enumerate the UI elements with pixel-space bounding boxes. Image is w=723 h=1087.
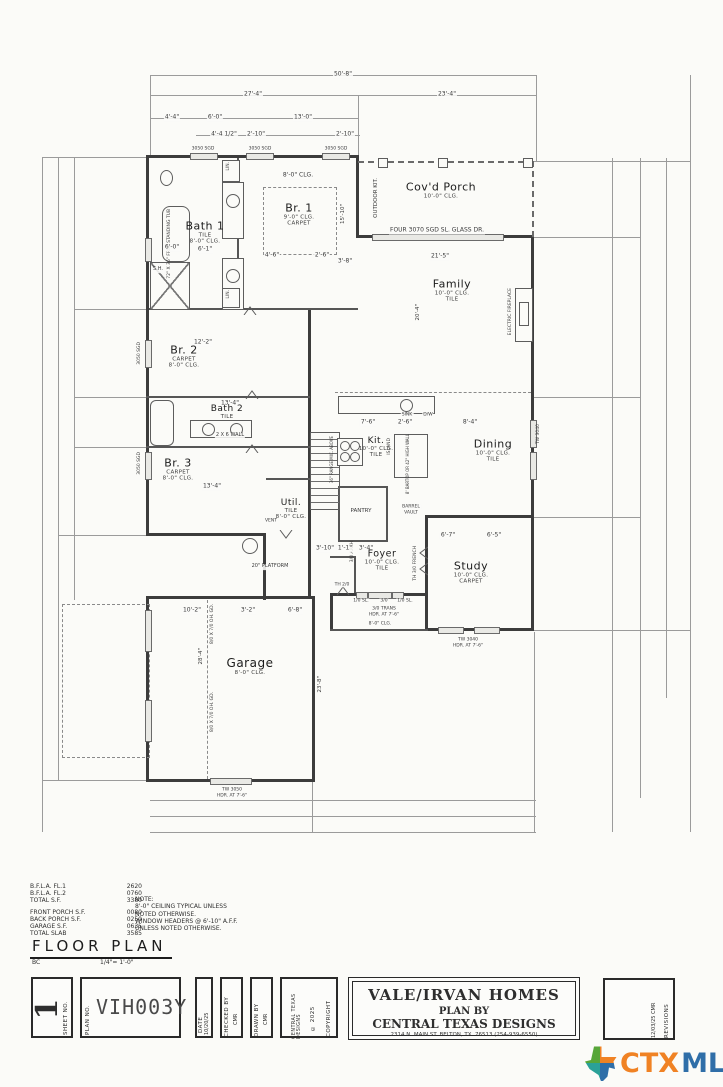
area-row: FRONT PORCH S.F.0080 xyxy=(30,909,142,916)
french-door-swing xyxy=(419,546,428,560)
extension-line xyxy=(74,447,146,448)
dim-label: 1'-1" xyxy=(337,546,353,553)
room-name: Garage xyxy=(227,656,274,670)
wall xyxy=(266,478,310,480)
dimension-line xyxy=(150,816,536,817)
extension-line xyxy=(534,630,690,631)
extension-line xyxy=(534,517,640,518)
note-line: 8'-0" CEILING TYPICAL UNLESS xyxy=(135,903,238,910)
dimension-line xyxy=(42,158,43,832)
drawing-title: FLOOR PLAN xyxy=(30,937,172,959)
checked-by-box: CHECKED BY CMR xyxy=(220,977,243,1038)
room-finish: TILE xyxy=(365,566,400,572)
designer-address: 2314 N. MAIN ST. BELTON, TX. 76513 (254-… xyxy=(353,1032,575,1038)
extension-line xyxy=(534,237,640,238)
checked-by-value: CMR xyxy=(233,997,239,1025)
dim-label: 2'-10" xyxy=(246,132,266,139)
dimension-line xyxy=(58,158,59,780)
logo-mls-text: MLS xyxy=(681,1048,723,1079)
floor-plan-sheet: { "plan": { "rooms": [ {"name": "Bath 1"… xyxy=(0,0,723,1087)
sheet-number-label: SHEET NO. xyxy=(63,985,69,1035)
plan-number-label: PLAN NO. xyxy=(85,985,91,1035)
wall xyxy=(425,515,534,518)
dim-label: 3'-8" xyxy=(337,259,353,266)
dimension-line xyxy=(150,95,536,96)
note-line: WINDOW HEADERS @ 6'-10" A.F.F. xyxy=(135,918,238,925)
shower-label: S.H. xyxy=(152,267,164,273)
room-br3: Br. 3 CARPET 8'-0" CLG. xyxy=(163,457,194,482)
room-name: Br. 2 xyxy=(169,344,200,357)
revisions-label: REVISIONS xyxy=(664,984,670,1038)
room-name: Foyer xyxy=(365,549,400,560)
extension-line xyxy=(536,75,537,161)
wall xyxy=(146,446,310,448)
wall xyxy=(312,596,315,782)
sink-label: SINK xyxy=(401,412,414,417)
extension-line xyxy=(150,75,151,157)
linen-label: LIN. xyxy=(227,290,232,299)
dim-label: 8'-4" xyxy=(462,420,478,427)
room-finish: CARPET xyxy=(454,579,489,585)
dimension-line xyxy=(690,75,691,832)
driveway-dashed xyxy=(62,604,150,758)
room-name: Bath 2 xyxy=(211,404,244,414)
stairs xyxy=(310,432,340,510)
overhead-door-label: 8/0 X 7/0 OH. GD. xyxy=(211,692,216,732)
area-row: B.F.L.A. FL.20760 xyxy=(30,890,142,897)
bartop-label: 8' BARTOP OR 42" HIGH WALL xyxy=(406,434,410,494)
copyright-company: CENTRAL TEXAS DESIGNS xyxy=(292,981,302,1039)
drawing-scale: 1/4"= 1'-0" xyxy=(100,959,134,966)
door-swing xyxy=(243,306,257,315)
extension-line xyxy=(74,397,146,398)
door-swing xyxy=(245,444,259,453)
room-finish: TILE xyxy=(359,452,394,458)
room-bath1: Bath 1 TILE 8'-0" CLG. xyxy=(185,220,224,245)
plan-by-label: PLAN BY xyxy=(353,1006,575,1017)
area-label: B.F.L.A. FL.1 xyxy=(30,883,66,890)
area-schedule: B.F.L.A. FL.12620 B.F.L.A. FL.20760 TOTA… xyxy=(30,883,142,938)
door-swing xyxy=(279,530,293,539)
dim-label: 3'-10" xyxy=(315,546,335,553)
room-covd-porch: Cov'd Porch 10'-0" CLG. xyxy=(406,181,476,200)
extension-line xyxy=(74,309,146,310)
garage-door xyxy=(145,610,152,652)
room-name: Study xyxy=(454,560,489,573)
dim-label: 2'-6" xyxy=(314,253,330,260)
note-line: NOTED OTHERWISE. xyxy=(135,911,238,918)
dim-label: 10'-2" xyxy=(182,608,202,615)
dim-label: 6'-8" xyxy=(287,608,303,615)
barrel-vault-label: VAULT xyxy=(403,510,419,515)
room-br2: Br. 2 CARPET 8'-0" CLG. xyxy=(169,344,200,369)
window xyxy=(530,452,537,480)
room-ceiling: 8'-0" CLG. xyxy=(185,239,224,245)
sink-basin xyxy=(202,423,215,436)
floor-plan-drawing: 72" X 36" FREE STANDING TUB S.H. LIN. LI… xyxy=(0,0,723,870)
window-label: 3050 SGD xyxy=(138,342,143,365)
porch-post xyxy=(378,158,388,168)
outdoor-kitchen-label: OUTDOOR KIT. xyxy=(374,178,380,218)
dim-label: 2'-10" xyxy=(335,132,355,139)
window xyxy=(438,627,464,634)
window-label: TW 3040 xyxy=(457,637,479,642)
window xyxy=(246,153,274,160)
room-ceiling: 8'-0" CLG. xyxy=(163,476,194,482)
water-heater xyxy=(242,538,258,554)
window xyxy=(322,153,350,160)
french-door-swing xyxy=(419,562,428,576)
dim-label: 4'-4 1/2" xyxy=(210,132,238,139)
header-note: HDR. AT 7'-6" xyxy=(216,793,248,798)
drawn-by-box: DRAWN BY CMR xyxy=(250,977,273,1038)
room-dining: Dining 10'-0" CLG. TILE xyxy=(474,438,513,463)
ceiling-note: 8'-0" CLG. xyxy=(282,173,314,180)
barrel-vault-label: BARREL xyxy=(401,504,421,509)
window-label: 3050 SGD xyxy=(324,146,349,151)
copyright-box: COPYRIGHT © 2025 CENTRAL TEXAS DESIGNS xyxy=(280,977,338,1038)
window xyxy=(145,238,152,262)
area-label: TOTAL S.F. xyxy=(30,897,61,904)
texas-icon xyxy=(582,1045,618,1081)
window-label: TW 3050 xyxy=(221,787,243,792)
area-value: 2620 xyxy=(127,883,142,890)
room-name: Family xyxy=(433,278,471,291)
copyright-year: © 2025 xyxy=(310,991,316,1031)
dim-label: 6'-5" xyxy=(486,533,502,540)
dim-label: 6'-0" xyxy=(207,115,223,122)
wall xyxy=(146,396,310,398)
dim-label: 4'-6" xyxy=(264,253,280,260)
area-row: TOTAL S.F.3380 xyxy=(30,897,142,904)
fireplace-firebox xyxy=(519,302,529,326)
dim-label: 28'-4" xyxy=(199,648,205,665)
date-box: DATE 10/20/25 xyxy=(195,977,213,1038)
extension-line xyxy=(42,780,146,781)
extension-line xyxy=(534,397,640,398)
room-ceiling: 8'-0" CLG. xyxy=(276,514,307,520)
note-title: NOTE: xyxy=(135,896,238,903)
fireplace-label: ELECTRIC FIREPLACE xyxy=(509,288,514,335)
porch-post xyxy=(438,158,448,168)
room-name: Dining xyxy=(474,438,513,451)
plan-number: VIH003Y xyxy=(96,995,181,1019)
dim-label: 13'-0" xyxy=(293,115,313,122)
dim-label: 6'-1" xyxy=(197,247,213,254)
dim-label: 6'-7" xyxy=(440,533,456,540)
drawn-by-label: DRAWN BY xyxy=(254,983,260,1037)
burner xyxy=(340,441,350,451)
ctxmls-logo: CTXMLS xyxy=(582,1045,723,1081)
header-note: HDR. AT 7'-6" xyxy=(452,643,484,648)
extension-line xyxy=(534,632,535,832)
room-finish: TILE xyxy=(433,297,471,303)
door-label: 3/0 xyxy=(379,598,388,603)
kitchen-sink xyxy=(400,399,413,412)
room-name: Br. 1 xyxy=(284,202,315,215)
company-title-inner: VALE/IRVAN HOMES PLAN BY CENTRAL TEXAS D… xyxy=(352,981,576,1036)
header-note: HDR. AT 7'-6" xyxy=(368,612,400,617)
window-label: TW 3040 xyxy=(537,424,542,444)
room-family: Family 10'-0" CLG. TILE xyxy=(433,278,471,303)
door-size-label: TH 2/0 xyxy=(334,582,351,587)
sliding-glass-door xyxy=(372,234,504,241)
dim-label: 23'-4" xyxy=(437,92,457,99)
window xyxy=(210,778,252,785)
company-title-box: VALE/IRVAN HOMES PLAN BY CENTRAL TEXAS D… xyxy=(348,977,580,1040)
area-row: BACK PORCH S.F.0250 xyxy=(30,916,142,923)
range-label: 36" RANGE MIC. ABOVE xyxy=(330,436,334,483)
dim-label: 7'-6" xyxy=(360,420,376,427)
room-kitchen: Kit. 10'-0" CLG. TILE xyxy=(359,436,394,458)
room-study: Study 10'-0" CLG. CARPET xyxy=(454,560,489,585)
builder-name: VALE/IRVAN HOMES xyxy=(353,986,575,1004)
general-notes: NOTE: 8'-0" CEILING TYPICAL UNLESS NOTED… xyxy=(135,896,238,933)
window-label: 3050 SGD xyxy=(191,146,216,151)
room-ceiling: 8'-0" CLG. xyxy=(169,363,200,369)
drawn-by-value: CMR xyxy=(263,997,269,1025)
revisions-box: REVISIONS 12/03/25 CMR xyxy=(603,978,675,1040)
sheet-number-box: 1 SHEET NO. xyxy=(31,977,73,1038)
extension-line xyxy=(358,95,359,157)
room-name: Cov'd Porch xyxy=(406,181,476,194)
area-label: GARAGE S.F. xyxy=(30,923,67,930)
room-pantry: PANTRY xyxy=(349,508,372,514)
dim-label: 3'-2" xyxy=(240,608,256,615)
vanity xyxy=(222,182,244,239)
dimension-line xyxy=(612,158,613,832)
dimension-line xyxy=(666,158,667,698)
platform-label: 20" PLATFORM xyxy=(251,564,290,570)
transom-label: 3/0 TRANS xyxy=(371,606,397,611)
extension-line xyxy=(534,161,690,162)
garage-door-track-dashed xyxy=(207,600,208,779)
sidelight-label: 1/0 SL. xyxy=(396,598,413,603)
dimension-line xyxy=(150,118,358,119)
designer-name: CENTRAL TEXAS DESIGNS xyxy=(353,1017,575,1031)
overhead-door-label: 8/0 X 7/0 OH. GD. xyxy=(211,604,216,644)
area-label: B.F.L.A. FL.2 xyxy=(30,890,66,897)
room-foyer: Foyer 10'-0" CLG. TILE xyxy=(365,549,400,572)
room-br1: Br. 1 9'-0" CLG. CARPET xyxy=(284,202,315,227)
copyright-line: COPYRIGHT xyxy=(326,983,332,1037)
window xyxy=(474,627,500,634)
extension-line xyxy=(58,535,146,536)
wall xyxy=(330,593,333,631)
area-row: GARAGE S.F.0635 xyxy=(30,923,142,930)
french-door-label: TH 3/0 FRENCH xyxy=(414,546,419,581)
sink-basin xyxy=(226,269,240,283)
window xyxy=(190,153,218,160)
linen-label: LIN. xyxy=(227,162,232,171)
date-value: 10/20/25 xyxy=(204,987,210,1035)
porch-ceiling-note: 8'-0" CLG. xyxy=(368,621,393,626)
checked-by-label: CHECKED BY xyxy=(224,983,230,1037)
burner xyxy=(340,452,350,462)
room-name: Kit. xyxy=(359,436,394,446)
dim-label: 2'-6" xyxy=(397,420,413,427)
room-finish: TILE xyxy=(211,414,244,420)
wall xyxy=(148,596,315,599)
window xyxy=(145,452,152,480)
area-label: FRONT PORCH S.F. xyxy=(30,909,85,916)
room-garage: Garage 8'-0" CLG. xyxy=(227,656,274,676)
area-label: BACK PORCH S.F. xyxy=(30,916,81,923)
room-name: Bath 1 xyxy=(185,220,224,233)
window-label: 3050 SGD xyxy=(248,146,273,151)
dim-label: 27'-4" xyxy=(243,92,263,99)
note-line: UNLESS NOTED OTHERWISE. xyxy=(135,925,238,932)
room-ceiling: 10'-0" CLG. xyxy=(406,194,476,200)
revision-entry: 12/03/25 CMR xyxy=(651,986,657,1038)
dim-label: 23'-8" xyxy=(318,676,324,693)
ceiling-break-dashed xyxy=(335,392,531,393)
kitchen-island xyxy=(394,434,428,478)
garage-door xyxy=(145,700,152,742)
room-bath2: Bath 2 TILE xyxy=(211,404,244,420)
extension-line xyxy=(312,782,313,832)
room-ceiling: 8'-0" CLG. xyxy=(227,670,274,676)
wall-note: 2 X 6 WALL xyxy=(215,433,245,439)
logo-ctx-text: CTX xyxy=(620,1048,679,1079)
dimension-line xyxy=(74,158,75,600)
room-name: Util. xyxy=(276,498,307,508)
area-row: B.F.L.A. FL.12620 xyxy=(30,883,142,890)
sidelight-label: 1/0 SL. xyxy=(352,598,369,603)
toilet xyxy=(160,170,173,186)
window-label: 3050 SGD xyxy=(138,452,143,475)
wall xyxy=(146,533,266,536)
room-utility: Util. TILE 8'-0" CLG. xyxy=(276,498,307,520)
dim-label: 13'-4" xyxy=(202,484,222,491)
dim-label: 15'-10" xyxy=(341,204,347,224)
dimension-line xyxy=(640,158,641,798)
room-name: Br. 3 xyxy=(163,457,194,470)
plan-number-box: PLAN NO. VIH003Y xyxy=(80,977,181,1038)
room-finish: TILE xyxy=(474,457,513,463)
sink-basin xyxy=(226,194,240,208)
dimension-line xyxy=(150,800,536,801)
bathtub xyxy=(150,400,174,446)
kitchen-counter xyxy=(338,396,435,414)
dim-label: 4'-4" xyxy=(164,115,180,122)
drawing-title-initials: BC xyxy=(32,959,40,966)
dim-label: 50'-8" xyxy=(333,72,353,79)
dishwasher-label: D/W xyxy=(422,412,433,417)
glass-door-label: FOUR 3070 SGD SL. GLASS DR. xyxy=(389,228,485,235)
door-swing xyxy=(245,390,259,399)
porch-post xyxy=(523,158,533,168)
room-finish: CARPET xyxy=(284,221,315,227)
extension-line xyxy=(42,157,146,158)
window xyxy=(145,340,152,368)
porch-edge xyxy=(330,629,428,631)
dim-label: 21'-5" xyxy=(430,254,450,261)
dim-label: 6'-0" xyxy=(164,245,180,252)
dim-label: 20'-4" xyxy=(416,304,422,321)
dimension-line xyxy=(150,832,536,833)
